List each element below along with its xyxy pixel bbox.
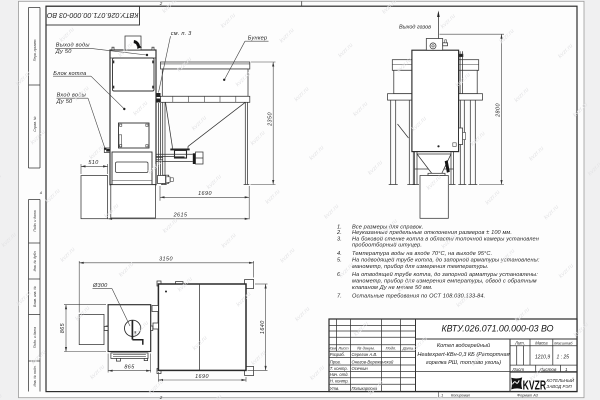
- svg-text:Утв.: Утв.: [330, 386, 340, 391]
- svg-text:Выход воды: Выход воды: [56, 42, 90, 48]
- svg-text:Онегов-Вережинский: Онегов-Вережинский: [352, 359, 394, 364]
- svg-text:Котел водогрейный: Котел водогрейный: [437, 342, 490, 349]
- svg-text:горелка РШ, топливо уголь): горелка РШ, топливо уголь): [426, 360, 501, 366]
- svg-text:Т. контр.: Т. контр.: [330, 366, 348, 371]
- svg-text:7.: 7.: [337, 293, 342, 299]
- svg-text:865: 865: [124, 365, 135, 371]
- svg-text:3.: 3.: [337, 237, 342, 243]
- svg-text:1210,9: 1210,9: [535, 354, 551, 360]
- svg-text:Справ. №: Справ. №: [33, 116, 37, 132]
- svg-text:2: 2: [159, 1, 163, 6]
- svg-text:№ докум.: № докум.: [357, 346, 375, 351]
- svg-text:2350: 2350: [267, 112, 273, 127]
- svg-text:КВТУ.026.071.00.000-03 ВО: КВТУ.026.071.00.000-03 ВО: [47, 11, 139, 20]
- svg-text:Изм.: Изм.: [329, 346, 338, 351]
- svg-text:пробоотборный штуцер.: пробоотборный штуцер.: [352, 242, 422, 249]
- svg-text:см. п. 3: см. п. 3: [171, 31, 192, 37]
- svg-text:Перв. примен.: Перв. примен.: [33, 39, 37, 62]
- svg-text:2800: 2800: [496, 103, 502, 118]
- svg-text:Heatexpert-КВн-0,3 КБ (Ретортн: Heatexpert-КВн-0,3 КБ (Ретортная: [417, 352, 509, 358]
- svg-text:Подп. и дата: Подп. и дата: [33, 210, 37, 231]
- svg-text:Разраб.: Разраб.: [330, 352, 345, 357]
- svg-text:Масса: Масса: [535, 341, 548, 346]
- svg-text:ЗАВОД РЭП: ЗАВОД РЭП: [547, 384, 573, 389]
- svg-text:2.: 2.: [336, 230, 342, 236]
- svg-text:На подводящей трубе котла, до: На подводящей трубе котла, до запорной а…: [352, 257, 540, 264]
- svg-text:Подп.: Подп.: [386, 346, 397, 351]
- svg-text:2: 2: [159, 395, 163, 400]
- svg-text:На отводящей трубе котла, до з: На отводящей трубе котла, до запорной ар…: [352, 271, 538, 278]
- svg-text:Температура воды на входе 70°С: Температура воды на входе 70°С, на выход…: [352, 251, 492, 257]
- svg-text:Пров.: Пров.: [330, 359, 341, 364]
- svg-text:Инв. № дубл.: Инв. № дубл.: [33, 251, 37, 272]
- svg-text:Бункер: Бункер: [248, 36, 267, 42]
- svg-text:Серегин А.В.: Серегин А.В.: [352, 352, 378, 357]
- svg-text:Лист: Лист: [337, 346, 349, 351]
- svg-text:2615: 2615: [173, 213, 188, 219]
- svg-text:Лит.: Лит.: [514, 341, 525, 346]
- svg-text:Подп. и дата: Подп. и дата: [33, 327, 37, 348]
- svg-text:Ду 50: Ду 50: [55, 49, 72, 55]
- svg-text:1 : 25: 1 : 25: [557, 354, 570, 360]
- svg-text:Ду 50: Ду 50: [56, 99, 73, 105]
- svg-text:Неуказанные предельные отклоне: Неуказанные предельные отклонения размер…: [352, 230, 512, 236]
- svg-text:Лист: Лист: [511, 367, 524, 372]
- svg-text:Копировал: Копировал: [451, 394, 471, 398]
- svg-text:4.: 4.: [337, 251, 342, 257]
- svg-text:Нач. отд.: Нач. отд.: [330, 372, 349, 377]
- svg-text:Масштаб: Масштаб: [554, 341, 573, 346]
- svg-text:1690: 1690: [195, 374, 209, 380]
- svg-text:клапаном Ду не менее 50 мм.: клапаном Ду не менее 50 мм.: [352, 285, 433, 291]
- svg-text:510: 510: [88, 160, 98, 166]
- svg-text:1: 1: [565, 367, 568, 372]
- svg-text:3150: 3150: [159, 257, 173, 263]
- svg-text:865: 865: [60, 322, 66, 333]
- svg-text:КОТЕЛЬНЫЙ: КОТЕЛЬНЫЙ: [547, 378, 575, 383]
- svg-text:манометр, прибор для измерения: манометр, прибор для измерения температу…: [352, 264, 489, 270]
- svg-text:Взам. инв. №: Взам. инв. №: [33, 286, 37, 307]
- svg-text:1690: 1690: [198, 191, 212, 197]
- svg-text:манометр, прибор для измерения: манометр, прибор для измерения емператур…: [352, 279, 537, 285]
- svg-text:Осечкин: Осечкин: [352, 366, 369, 371]
- svg-text:5.: 5.: [337, 258, 342, 264]
- svg-text:Н. контр.: Н. контр.: [330, 379, 349, 384]
- svg-text:Выход газов: Выход газов: [399, 25, 431, 31]
- svg-text:Инв. № подл.: Инв. № подл.: [33, 365, 37, 386]
- svg-text:КВТУ.026.071.00.000-03 ВО: КВТУ.026.071.00.000-03 ВО: [441, 324, 553, 334]
- svg-text:Формат А3: Формат А3: [517, 394, 539, 398]
- svg-text:1640: 1640: [260, 320, 266, 334]
